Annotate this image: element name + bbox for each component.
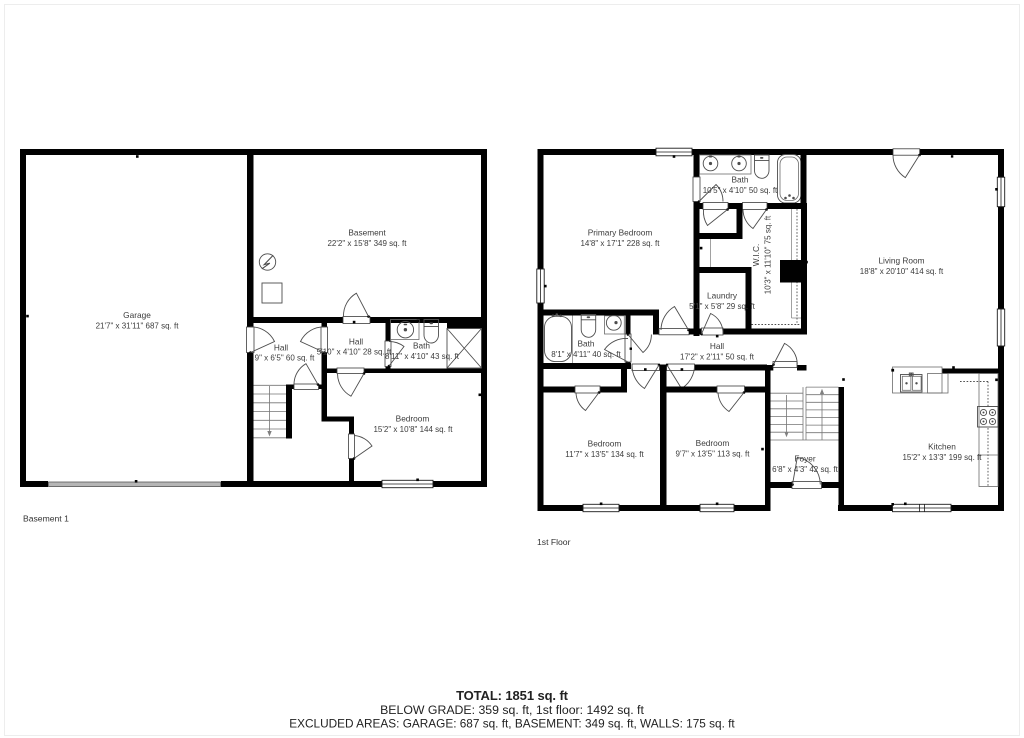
svg-text:17'2" x 2'11" 50 sq. ft: 17'2" x 2'11" 50 sq. ft (680, 353, 755, 362)
svg-text:Bath: Bath (413, 341, 430, 351)
svg-text:Bath: Bath (731, 175, 748, 185)
svg-text:Garage: Garage (123, 310, 151, 320)
svg-text:Hall: Hall (349, 337, 363, 347)
svg-text:9" x 6'5" 60 sq. ft: 9" x 6'5" 60 sq. ft (255, 354, 315, 363)
svg-text:21'7" x 31'11" 687 sq. ft: 21'7" x 31'11" 687 sq. ft (96, 322, 180, 331)
svg-text:Basement: Basement (348, 228, 386, 238)
svg-text:18'8" x 20'10" 414 sq. ft: 18'8" x 20'10" 414 sq. ft (860, 267, 944, 276)
svg-text:W.I.C.: W.I.C. (751, 244, 761, 267)
svg-text:8'11" x 4'10" 43 sq. ft: 8'11" x 4'10" 43 sq. ft (385, 352, 460, 361)
svg-text:Laundry: Laundry (707, 291, 738, 301)
svg-text:10'5" x 4'10" 50 sq. ft: 10'5" x 4'10" 50 sq. ft (703, 186, 778, 195)
svg-text:5'1" x 5'8" 29 sq. ft: 5'1" x 5'8" 29 sq. ft (689, 302, 755, 311)
svg-text:Bath: Bath (577, 339, 594, 349)
svg-text:15'2" x 10'8" 144 sq. ft: 15'2" x 10'8" 144 sq. ft (373, 425, 453, 434)
svg-text:Kitchen: Kitchen (928, 442, 956, 452)
svg-text:10'3" x 11'10" 75 sq. ft: 10'3" x 11'10" 75 sq. ft (764, 215, 773, 294)
svg-text:11'7" x 13'5" 134 sq. ft: 11'7" x 13'5" 134 sq. ft (565, 450, 644, 459)
svg-text:14'8" x 17'1" 228 sq. ft: 14'8" x 17'1" 228 sq. ft (580, 239, 660, 248)
svg-text:Hall: Hall (710, 341, 724, 351)
svg-text:Bedroom: Bedroom (696, 438, 730, 448)
svg-text:EXCLUDED AREAS: GARAGE: 687 sq: EXCLUDED AREAS: GARAGE: 687 sq. ft, BASE… (289, 717, 735, 731)
svg-text:9'7" x 13'5" 113 sq. ft: 9'7" x 13'5" 113 sq. ft (676, 450, 751, 459)
svg-text:6'8" x 4'3" 42 sq. ft: 6'8" x 4'3" 42 sq. ft (772, 465, 838, 474)
svg-text:Primary Bedroom: Primary Bedroom (588, 228, 653, 238)
svg-text:8'1" x 4'11" 40 sq. ft: 8'1" x 4'11" 40 sq. ft (551, 350, 621, 359)
svg-text:15'2" x 13'3" 199 sq. ft: 15'2" x 13'3" 199 sq. ft (902, 453, 982, 462)
svg-text:Bedroom: Bedroom (396, 414, 430, 424)
svg-text:Foyer: Foyer (794, 454, 815, 464)
svg-text:5'10" x 4'10" 28 sq. ft: 5'10" x 4'10" 28 sq. ft (317, 348, 392, 357)
svg-text:22'2" x 15'8" 349 sq. ft: 22'2" x 15'8" 349 sq. ft (327, 239, 407, 248)
svg-text:Living Room: Living Room (878, 256, 924, 266)
svg-text:1st Floor: 1st Floor (537, 537, 571, 547)
svg-text:BELOW GRADE: 359 sq. ft, 1st f: BELOW GRADE: 359 sq. ft, 1st floor: 1492… (380, 703, 644, 717)
svg-text:Basement 1: Basement 1 (23, 514, 69, 524)
svg-text:Bedroom: Bedroom (588, 439, 622, 449)
svg-text:TOTAL: 1851 sq. ft: TOTAL: 1851 sq. ft (456, 688, 569, 703)
svg-text:Hall: Hall (274, 343, 288, 353)
